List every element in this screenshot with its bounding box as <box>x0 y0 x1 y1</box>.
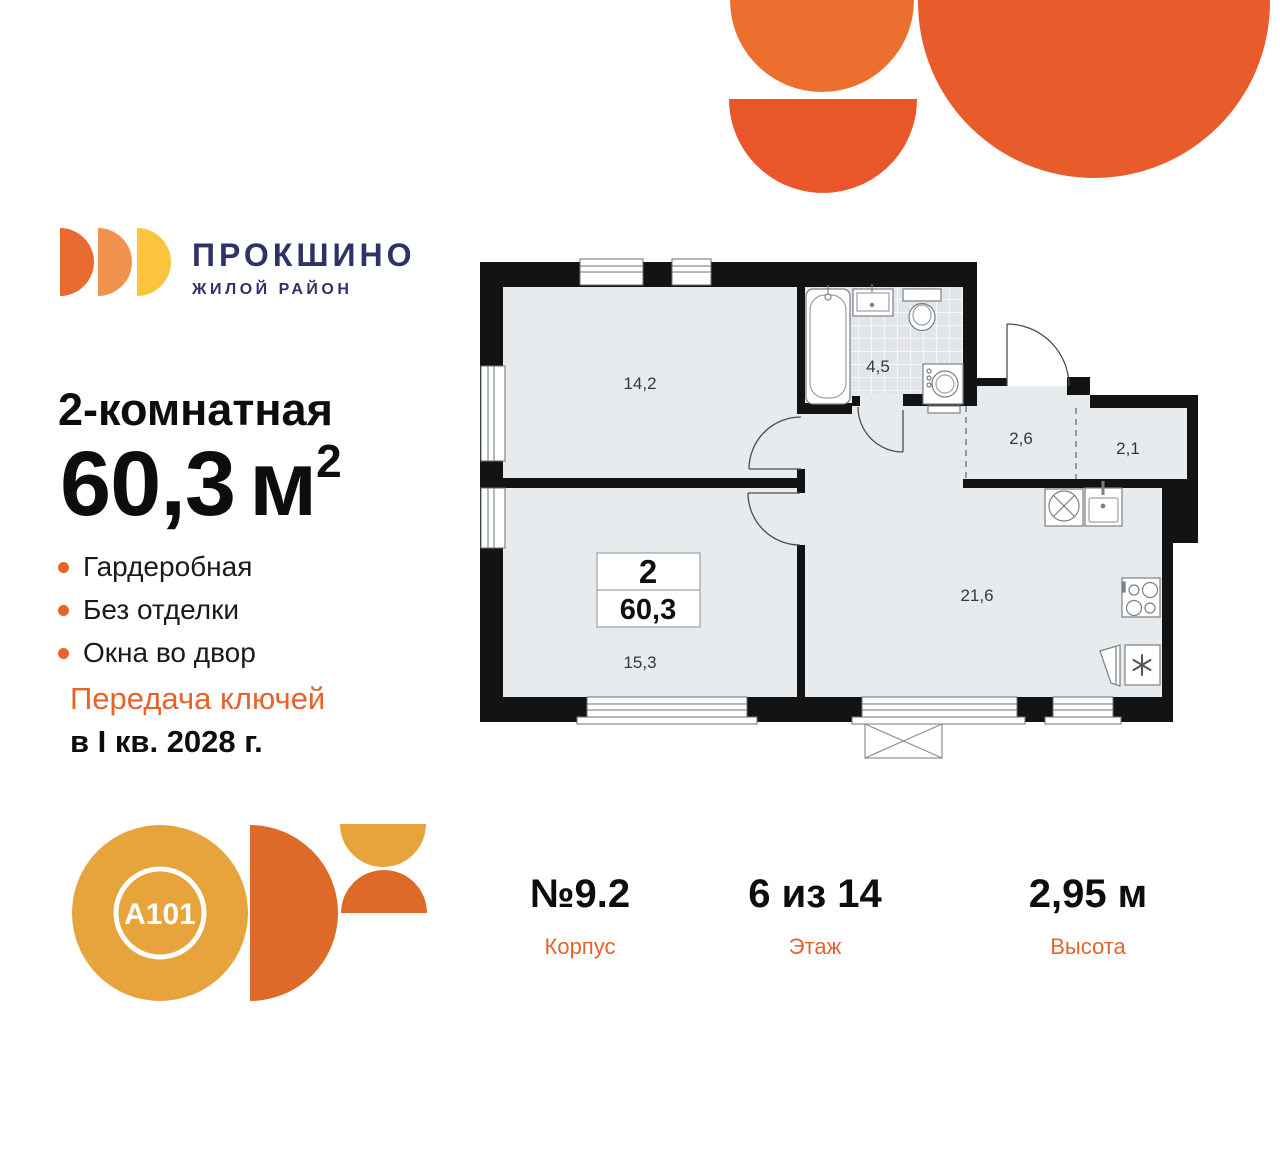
handover-date: в I кв. 2028 г. <box>70 724 263 760</box>
kitchen-sink-icon <box>1045 489 1083 526</box>
brand-name: ПРОКШИНО <box>192 237 416 274</box>
plan-badge: 2 60,3 <box>597 553 700 627</box>
bathtub-icon <box>806 285 850 404</box>
detail-value: 6 из 14 <box>748 872 881 917</box>
balcony <box>865 724 942 758</box>
brand-tagline: ЖИЛОЙ РАЙОН <box>192 281 416 299</box>
detail-ceiling-height: 2,95 м Высота <box>1029 872 1148 960</box>
feature-list: Гардеробная Без отделки Окна во двор <box>58 551 256 680</box>
list-item: Окна во двор <box>58 637 256 669</box>
detail-building: №9.2 Корпус <box>530 872 630 960</box>
prokshino-logo-icon <box>56 226 176 300</box>
room2-area-label: 15,3 <box>623 653 656 672</box>
door-entry <box>1007 324 1069 386</box>
window-left-1 <box>481 366 505 461</box>
sink-icon <box>853 284 893 316</box>
stove-icon <box>1122 578 1160 617</box>
area-value: 60,3 <box>60 433 235 535</box>
bullet-dot-icon <box>58 562 69 573</box>
logo-arc-3 <box>137 228 171 296</box>
a101-hourglass-top <box>340 824 426 867</box>
decor-circle-large <box>918 0 1270 178</box>
floor-plan: 2 60,3 14,2 4,5 2,6 2,1 21,6 15,3 <box>470 250 1210 780</box>
a101-hourglass-bottom <box>341 870 427 913</box>
handover-title: Передача ключей <box>70 681 325 717</box>
detail-value: №9.2 <box>530 872 630 917</box>
a101-logo-text: A101 <box>124 898 196 931</box>
window-bottom-kitchen-1 <box>852 697 1025 724</box>
apartment-type-title: 2-комнатная <box>58 384 333 436</box>
wardrobe-area-label: 2,1 <box>1116 439 1140 458</box>
bullet-dot-icon <box>58 605 69 616</box>
a101-logo: A101 <box>60 813 440 1013</box>
room1-area-label: 14,2 <box>623 374 656 393</box>
kitchen-basin-icon <box>1085 481 1122 526</box>
badge-area: 60,3 <box>620 594 676 626</box>
feature-label: Окна во двор <box>83 637 256 669</box>
detail-label: Корпус <box>530 934 630 960</box>
listing-card: ПРОКШИНО ЖИЛОЙ РАЙОН 2-комнатная 60,3м2 … <box>0 0 1280 1160</box>
list-item: Гардеробная <box>58 551 256 583</box>
window-top-1 <box>580 259 643 285</box>
washing-machine-icon <box>923 364 963 413</box>
detail-floor: 6 из 14 Этаж <box>748 872 881 960</box>
list-item: Без отделки <box>58 594 256 626</box>
window-bottom-kitchen-2 <box>1045 697 1121 724</box>
detail-value: 2,95 м <box>1029 872 1148 917</box>
feature-label: Без отделки <box>83 594 239 626</box>
hall-area-label: 2,6 <box>1009 429 1033 448</box>
detail-label: Этаж <box>748 934 881 960</box>
apartment-area: 60,3м2 <box>60 438 341 530</box>
area-superscript: 2 <box>316 435 341 487</box>
logo-arc-1 <box>60 228 94 296</box>
badge-rooms: 2 <box>639 553 657 590</box>
window-left-2 <box>481 488 505 548</box>
feature-label: Гардеробная <box>83 551 252 583</box>
kitchen-area-label: 21,6 <box>960 586 993 605</box>
window-top-2 <box>672 259 711 285</box>
logo-arc-2 <box>98 228 132 296</box>
decor-half-circle-small-top <box>730 0 914 92</box>
bullet-dot-icon <box>58 648 69 659</box>
decor-shapes <box>620 0 1280 210</box>
window-bottom-room2 <box>577 697 757 724</box>
decor-half-circle-small-bottom <box>729 99 917 193</box>
prokshino-logo-text: ПРОКШИНО ЖИЛОЙ РАЙОН <box>192 237 416 299</box>
detail-label: Высота <box>1029 934 1148 960</box>
area-unit: м <box>249 433 316 535</box>
a101-half-disc <box>250 825 338 1001</box>
bathroom-area-label: 4,5 <box>866 357 890 376</box>
